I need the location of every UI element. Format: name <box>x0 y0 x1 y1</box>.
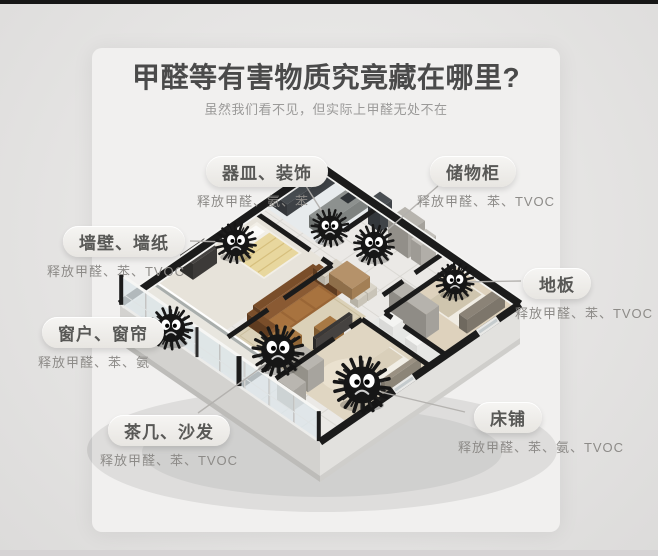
callout-storage-cabinet: 储物柜 释放甲醛、苯、TVOC <box>391 156 555 210</box>
callout-vessels-decor: 器皿、装饰 释放甲醛、氨、苯 <box>206 156 328 210</box>
callout-bed: 床铺 释放甲醛、苯、氨、TVOC <box>392 402 624 456</box>
callout-teatable-sofa: 茶几、沙发 释放甲醛、苯、TVOC <box>100 415 238 469</box>
callout-pill: 墙壁、墙纸 <box>63 226 185 257</box>
callout-release-text: 释放甲醛、苯、TVOC <box>100 450 238 469</box>
callout-release-text: 释放甲醛、苯、氨 <box>24 352 164 371</box>
callout-release-text: 释放甲醛、氨、苯 <box>178 191 328 210</box>
callout-pill: 储物柜 <box>430 156 516 187</box>
callout-window-curtain: 窗户、窗帘 释放甲醛、苯、氨 <box>42 317 164 371</box>
callout-pill: 地板 <box>523 268 591 299</box>
callout-floor: 地板 释放甲醛、苯、TVOC <box>461 268 653 322</box>
callout-pill: 窗户、窗帘 <box>42 317 164 348</box>
callout-wall-wallpaper: 墙壁、墙纸 释放甲醛、苯、TVOC <box>63 226 185 280</box>
callout-release-text: 释放甲醛、苯、TVOC <box>417 191 555 210</box>
callout-release-text: 释放甲醛、苯、TVOC <box>47 261 185 280</box>
callout-release-text: 释放甲醛、苯、TVOC <box>515 303 653 322</box>
callout-pill: 床铺 <box>474 402 542 433</box>
callout-pill: 器皿、装饰 <box>206 156 328 187</box>
callout-release-text: 释放甲醛、苯、氨、TVOC <box>458 437 624 456</box>
infographic-formaldehyde-sources: 甲醛等有害物质究竟藏在哪里? 虽然我们看不见，但实际上甲醛无处不在 器皿、装饰 … <box>0 0 658 556</box>
callout-pill: 茶几、沙发 <box>108 415 230 446</box>
